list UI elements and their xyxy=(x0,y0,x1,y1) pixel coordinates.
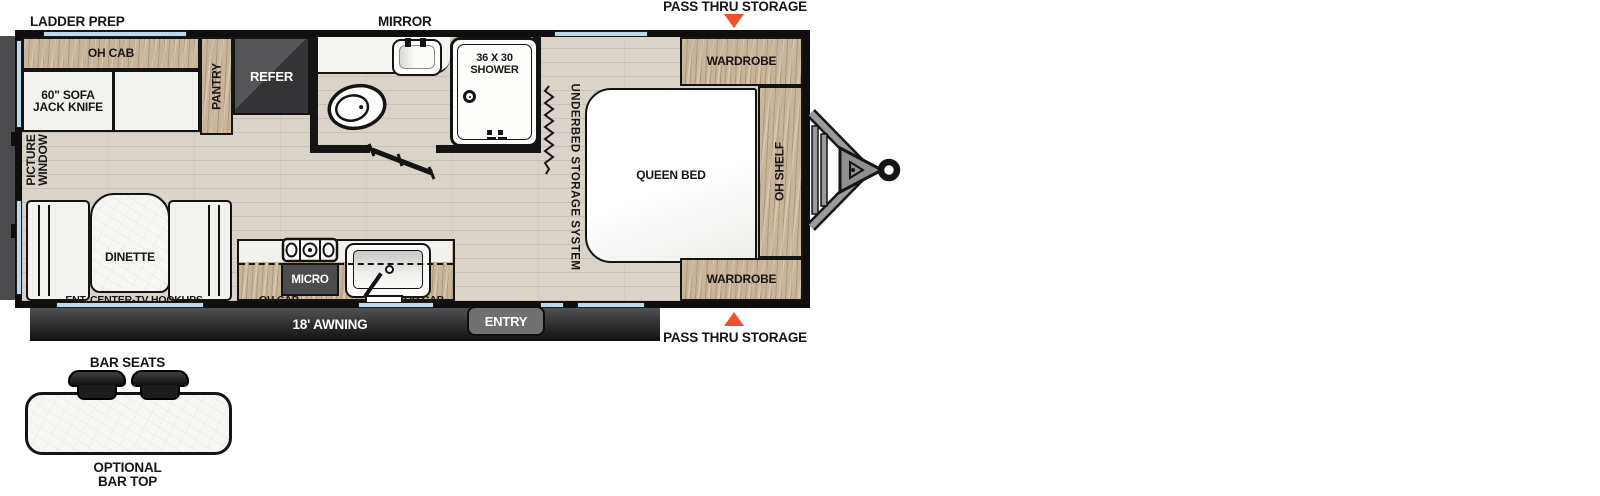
optional-bar-top xyxy=(25,392,232,455)
wardrobe-top: WARDROBE xyxy=(680,37,803,86)
overhead-cabinet-sofa: OH CAB xyxy=(22,37,200,70)
sofa-divider xyxy=(112,72,115,130)
bench-line xyxy=(218,205,220,296)
shower-stall: 36 X 30SHOWER xyxy=(450,37,539,147)
window-bottom-entry xyxy=(540,302,564,308)
faucet-handle xyxy=(420,38,426,47)
shower-head-dot xyxy=(469,96,471,98)
queen-bed-label: QUEEN BED xyxy=(587,90,755,261)
shower-head-icon xyxy=(463,90,476,103)
picture-window-label: PICTUREWINDOW xyxy=(25,130,51,190)
rear-bumper xyxy=(0,36,15,300)
window-bottom-bedroom xyxy=(577,302,645,308)
bathroom-sink xyxy=(392,39,442,76)
bar-stool xyxy=(131,370,189,401)
wardrobe-top-label: WARDROBE xyxy=(707,55,777,68)
shower-label: 36 X 30SHOWER xyxy=(453,52,536,76)
window-top-bedroom xyxy=(554,31,648,37)
dinette-label: DINETTE xyxy=(92,195,168,291)
window-bottom-dinette xyxy=(56,302,204,308)
bathroom-wall-bottom-left xyxy=(310,145,370,153)
picture-window xyxy=(16,200,22,295)
underbed-storage-label: UNDERBED STORAGE SYSTEM xyxy=(568,84,581,262)
refrigerator: REFER xyxy=(233,37,310,115)
microwave: MICRO xyxy=(281,263,339,296)
floorplan-canvas: LADDER PREP MIRROR PASS THRU STORAGE PAS… xyxy=(0,0,1600,496)
dinette-bench-left xyxy=(26,200,90,301)
optional-bar-top-label: OPTIONALBAR TOP xyxy=(55,461,200,488)
sink-drain xyxy=(385,265,394,274)
mirror-label: MIRROR xyxy=(378,15,432,29)
dinette-bench-right xyxy=(168,200,232,301)
stool-base xyxy=(140,385,180,400)
shower-drain xyxy=(485,129,511,141)
wardrobe-bottom: WARDROBE xyxy=(680,258,803,301)
pantry-label: PANTRY xyxy=(211,47,224,127)
pass-thru-storage-bottom-label: PASS THRU STORAGE xyxy=(660,331,810,345)
kitchen-sink xyxy=(345,243,431,298)
micro-label: MICRO xyxy=(291,274,328,286)
window-top-left xyxy=(43,31,187,37)
window-bottom-kitchen xyxy=(358,302,434,308)
trailer-hitch xyxy=(811,113,897,227)
bar-seats-label: BAR SEATS xyxy=(55,356,200,370)
oh-cab-left-label: OH CAB xyxy=(242,295,316,306)
stool-base xyxy=(77,385,117,400)
window-left-upper xyxy=(16,40,22,128)
bench-line xyxy=(48,205,50,296)
pass-thru-storage-top-label: PASS THRU STORAGE xyxy=(660,0,810,14)
bench-line xyxy=(208,205,210,296)
bath-sink-basin xyxy=(399,45,435,69)
stove-burners xyxy=(281,237,339,263)
bathroom-wall-left xyxy=(310,37,318,152)
pass-thru-arrow-up-icon xyxy=(724,312,744,326)
wardrobe-bottom-label: WARDROBE xyxy=(707,273,777,286)
jackknife-sofa: 60" SOFAJACK KNIFE xyxy=(22,70,200,132)
faucet-handle xyxy=(405,38,411,47)
queen-bed: QUEEN BED xyxy=(585,88,757,263)
refer-label: REFER xyxy=(250,69,293,84)
overhead-cab-dashed-line xyxy=(239,263,453,265)
pass-thru-arrow-down-icon xyxy=(724,14,744,28)
dinette-table: DINETTE xyxy=(90,193,170,293)
ladder-prep-label: LADDER PREP xyxy=(30,15,125,29)
sofa-label: 60" SOFAJACK KNIFE xyxy=(24,72,112,130)
oh-cab-label: OH CAB xyxy=(88,47,134,60)
bench-line xyxy=(38,205,40,296)
oh-shelf-label: OH SHELF xyxy=(774,137,787,207)
entry-door-label: ENTRY xyxy=(467,306,545,336)
bar-stool xyxy=(68,370,126,401)
